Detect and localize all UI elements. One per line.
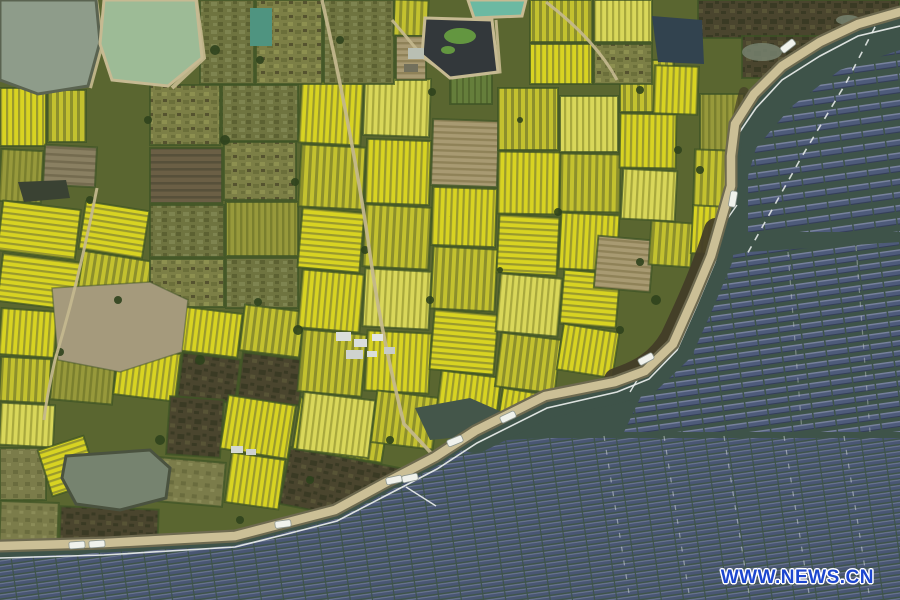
- tree: [114, 296, 122, 304]
- aerial-photo: [0, 0, 900, 600]
- tree: [674, 146, 682, 154]
- crop-field: [226, 202, 298, 256]
- crop-field: [653, 65, 699, 115]
- crop-field: [298, 80, 363, 145]
- crop-field: [431, 119, 499, 187]
- crop-field: [225, 452, 285, 509]
- tree: [497, 267, 503, 273]
- crop-field: [324, 0, 394, 84]
- farm-building: [408, 48, 424, 59]
- crop-field: [362, 204, 431, 269]
- tree: [144, 116, 152, 124]
- farm-building: [336, 332, 351, 341]
- crop-field: [150, 205, 224, 257]
- crop-field: [150, 148, 222, 203]
- tree: [236, 516, 244, 524]
- crop-field: [200, 0, 254, 84]
- watermark-url: www.news.cn: [721, 567, 874, 589]
- tree: [210, 45, 220, 55]
- tree: [554, 208, 562, 216]
- crop-field: [530, 44, 592, 84]
- pond: [652, 16, 704, 64]
- crop-field: [297, 392, 376, 458]
- marsh-pool: [742, 43, 782, 61]
- farm-building: [384, 347, 395, 354]
- crop-field: [226, 258, 298, 308]
- tree: [426, 296, 434, 304]
- crop-field: [48, 90, 86, 142]
- tree: [254, 298, 262, 306]
- farm-building: [372, 334, 383, 341]
- tree: [306, 476, 314, 484]
- crop-field: [620, 114, 677, 169]
- crop-field: [497, 214, 560, 275]
- crop-field: [222, 85, 298, 141]
- farm-building: [246, 449, 256, 455]
- crop-field: [594, 44, 652, 84]
- crop-field: [649, 221, 694, 268]
- tree: [651, 295, 661, 305]
- photo-canvas: www.news.cn: [0, 0, 900, 600]
- pond: [62, 450, 170, 510]
- farm-building: [346, 350, 363, 359]
- tree: [636, 258, 644, 266]
- crop-field: [365, 139, 431, 205]
- boat-float: [89, 540, 105, 548]
- crop-field: [497, 151, 560, 214]
- crop-field: [298, 269, 365, 332]
- crop-field: [430, 246, 497, 311]
- tree: [616, 326, 624, 334]
- farm-building: [404, 64, 418, 72]
- aquatic-plants: [441, 46, 455, 54]
- crop-field: [621, 169, 678, 222]
- pond: [468, 0, 526, 18]
- crop-field: [298, 207, 365, 272]
- crop-field: [0, 357, 51, 404]
- crop-field: [430, 309, 499, 374]
- tree: [696, 166, 704, 174]
- crop-field: [431, 187, 497, 247]
- crop-field: [166, 396, 224, 458]
- tree: [386, 436, 394, 444]
- tree: [220, 135, 230, 145]
- tree: [428, 88, 436, 96]
- crop-field: [594, 236, 654, 293]
- tree: [293, 325, 303, 335]
- crop-field: [498, 88, 558, 150]
- aquatic-plants: [444, 28, 476, 44]
- crop-field: [0, 308, 58, 358]
- farm-building: [354, 339, 367, 347]
- crop-field: [150, 85, 220, 145]
- pond: [0, 0, 100, 94]
- tree: [636, 86, 644, 94]
- crop-field: [0, 88, 46, 146]
- crop-field: [495, 333, 561, 394]
- crop-field: [496, 273, 563, 336]
- crop-field: [0, 200, 81, 259]
- crop-field: [363, 77, 431, 137]
- tree: [155, 435, 165, 445]
- tree: [256, 56, 264, 64]
- crop-field: [594, 0, 652, 42]
- crop-field: [559, 153, 620, 212]
- pond: [250, 8, 272, 46]
- tree: [336, 36, 344, 44]
- farm-building: [231, 446, 243, 453]
- crop-field: [560, 96, 618, 152]
- tree: [517, 117, 523, 123]
- farm-building: [367, 351, 377, 357]
- tree: [195, 355, 205, 365]
- tree: [291, 178, 299, 186]
- crop-field: [224, 142, 296, 200]
- boat-float: [69, 541, 85, 549]
